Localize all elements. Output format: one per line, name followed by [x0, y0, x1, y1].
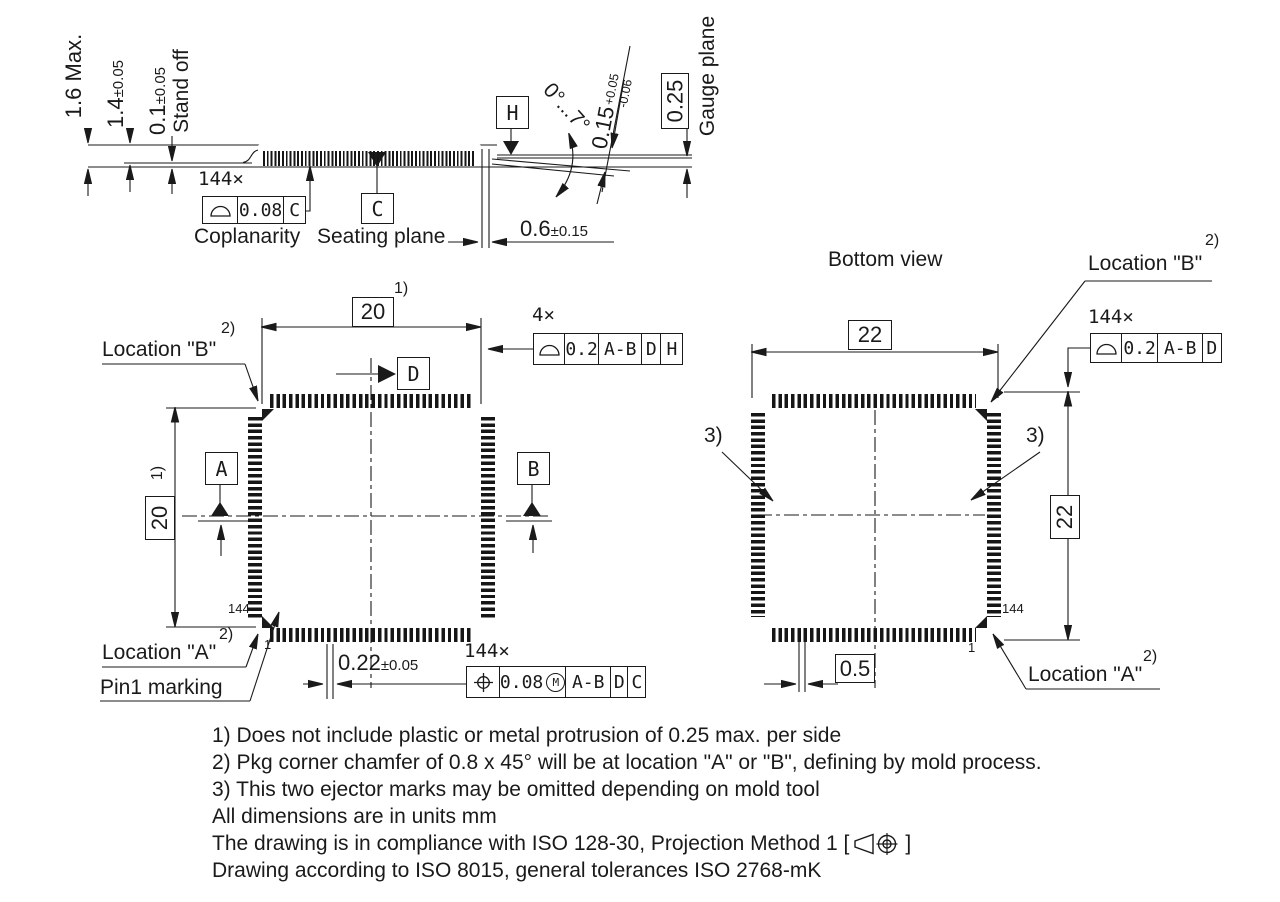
- ejector-ref-right: 3): [1026, 424, 1045, 448]
- bv-dim-height-box: 22: [1050, 495, 1080, 539]
- pin-first-label: 1: [264, 637, 271, 652]
- position-fcf-datum2: D: [610, 666, 629, 698]
- coplanarity-datum: C: [283, 196, 306, 224]
- bottom-view-pins-right: [987, 413, 1001, 617]
- standoff-label: Stand off: [170, 49, 194, 133]
- profile-symbol-icon: [1090, 333, 1122, 363]
- location-b-ref: 2): [221, 320, 235, 338]
- datum-b-box: B: [517, 452, 550, 485]
- notes-block: 1) Does not include plastic or metal pro…: [212, 722, 1042, 884]
- top-view-pins-left: [248, 417, 262, 619]
- datum-h-box: H: [496, 96, 529, 129]
- dim-width-ref: 1): [394, 280, 408, 298]
- bv-location-a-ref: 2): [1143, 648, 1157, 666]
- location-a-label: Location "A": [102, 641, 216, 665]
- coplanarity-label: Coplanarity: [194, 225, 300, 249]
- ejector-ref-left: 3): [704, 424, 723, 448]
- bv-fcf-datum1: A-B: [1157, 333, 1203, 363]
- dim-body-thickness: 1.4±0.05: [103, 60, 129, 128]
- position-fcf-value: 0.08M: [499, 666, 567, 698]
- coplanarity-value: 0.08: [237, 196, 285, 224]
- bv-pin-first-label: 1: [968, 640, 975, 655]
- dim-height-box: 20: [145, 496, 175, 540]
- gauge-plane-label: Gauge plane: [696, 16, 720, 136]
- profile-symbol-icon: [533, 333, 565, 365]
- profile-fcf-count: 4×: [532, 304, 555, 326]
- dim-gauge-offset-box: 0.25: [661, 73, 689, 129]
- side-view-leads: [263, 151, 474, 166]
- datum-c-box: C: [361, 193, 394, 224]
- bv-dim-lead-width-box: 0.5: [835, 654, 875, 683]
- dim-foot-length: 0.6±0.15: [520, 216, 588, 242]
- dim-height-max: 1.6 Max.: [61, 34, 87, 118]
- note-iso-projection: The drawing is in compliance with ISO 12…: [212, 830, 1042, 857]
- datum-d-box: D: [397, 357, 430, 390]
- note-1: 1) Does not include plastic or metal pro…: [212, 722, 1042, 749]
- dim-height-ref: 1): [149, 466, 167, 480]
- bv-fcf-count: 144×: [1088, 306, 1134, 328]
- location-b-label: Location "B": [102, 338, 216, 362]
- note-units: All dimensions are in units mm: [212, 803, 1042, 830]
- top-view-pins-top: [270, 394, 472, 408]
- dim-pitch: 0.22±0.05: [338, 650, 418, 676]
- bv-pin-last-label: 144: [1002, 601, 1024, 616]
- bottom-view-title: Bottom view: [828, 248, 942, 272]
- top-view-pins-right: [481, 417, 495, 619]
- position-symbol-icon: [466, 666, 500, 698]
- bv-location-b-label: Location "B": [1088, 252, 1202, 276]
- profile-fcf-datum2: D: [641, 333, 662, 365]
- bv-profile-fcf: 0.2 A-B D: [1090, 333, 1222, 363]
- position-fcf-datum1: A-B: [565, 666, 611, 698]
- bv-location-b-ref: 2): [1205, 232, 1219, 250]
- top-view-pins-bottom: [270, 628, 472, 642]
- note-2: 2) Pkg corner chamfer of 0.8 x 45° will …: [212, 749, 1042, 776]
- profile-fcf-datum3: H: [660, 333, 683, 365]
- package-outline-drawing: 1.6 Max. 1.4±0.05 0.1±0.05 Stand off 144…: [0, 0, 1280, 902]
- bv-fcf-value: 0.2: [1121, 333, 1159, 363]
- datum-a-box: A: [205, 452, 238, 485]
- bv-location-a-label: Location "A": [1028, 663, 1142, 687]
- seating-plane-label: Seating plane: [317, 225, 445, 249]
- position-fcf-count: 144×: [464, 640, 510, 662]
- bottom-view-pins-left: [751, 413, 765, 617]
- position-fcf: 0.08M A-B D C: [466, 666, 646, 698]
- profile-fcf-value: 0.2: [564, 333, 600, 365]
- position-fcf-datum3: C: [627, 666, 646, 698]
- location-a-ref: 2): [219, 626, 233, 644]
- bottom-view-pins-top: [772, 394, 976, 408]
- projection-method-icon: [852, 831, 902, 857]
- dim-width-box: 20: [352, 297, 394, 327]
- bv-dim-width-box: 22: [848, 320, 892, 350]
- dim-standoff: 0.1±0.05: [145, 67, 171, 135]
- note-iso-tolerances: Drawing according to ISO 8015, general t…: [212, 857, 1042, 884]
- profile-fcf: 0.2 A-B D H: [533, 333, 683, 365]
- coplanarity-count: 144×: [198, 168, 244, 190]
- note-3: 3) This two ejector marks may be omitted…: [212, 776, 1042, 803]
- mmc-modifier-icon: M: [546, 673, 565, 692]
- bv-fcf-datum2: D: [1202, 333, 1222, 363]
- pin1-marking-label: Pin1 marking: [100, 676, 223, 700]
- profile-symbol-icon: [202, 196, 238, 224]
- profile-fcf-datum1: A-B: [598, 333, 642, 365]
- bottom-view-pins-bottom: [772, 628, 976, 642]
- pin-last-label: 144: [228, 601, 250, 616]
- coplanarity-fcf: 0.08 C: [202, 196, 306, 224]
